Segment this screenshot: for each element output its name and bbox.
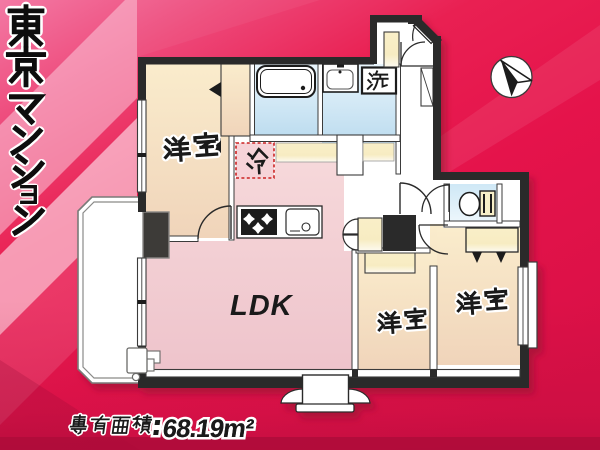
svg-text:68.19m²: 68.19m² <box>161 415 255 443</box>
svg-text:LDK: LDK <box>230 290 294 322</box>
